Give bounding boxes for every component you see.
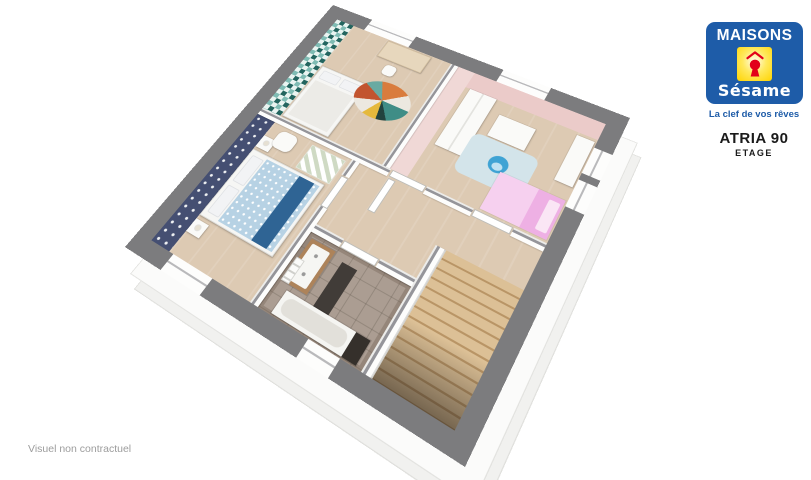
exterior-wall <box>125 5 630 467</box>
brand-logo: MAISONS Sésame <box>706 22 803 104</box>
brand-tagline: La clef de vos rêves <box>694 109 811 120</box>
floorplan-3d <box>125 5 630 467</box>
disclaimer-text: Visuel non contractuel <box>28 443 131 455</box>
level-label: ETAGE <box>694 148 811 158</box>
page-canvas: MAISONS Sésame La clef de vos rêves ATRI… <box>0 0 811 480</box>
brand-logo-keyhole-square <box>737 47 772 81</box>
brand-logo-maisons: MAISONS <box>717 27 793 45</box>
model-title: ATRIA 90 <box>694 130 811 147</box>
keyhole-icon <box>740 49 770 79</box>
brand-logo-sesame: Sésame <box>718 81 791 100</box>
